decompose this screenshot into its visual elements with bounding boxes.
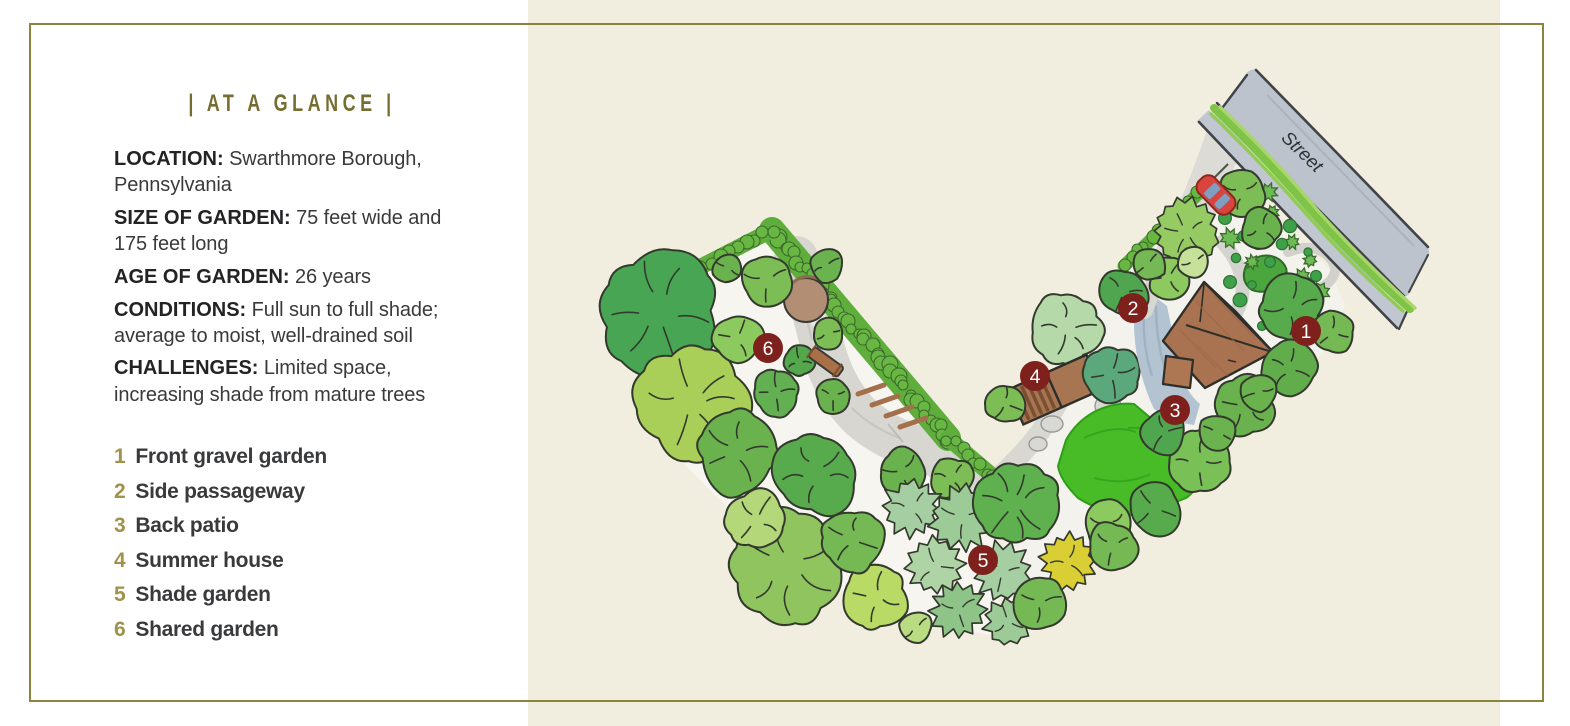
- svg-text:6: 6: [763, 338, 774, 360]
- svg-text:1: 1: [1301, 321, 1312, 343]
- svg-text:2: 2: [1128, 298, 1139, 320]
- svg-text:4: 4: [1030, 366, 1041, 388]
- svg-text:3: 3: [1170, 400, 1181, 422]
- svg-text:5: 5: [978, 550, 989, 572]
